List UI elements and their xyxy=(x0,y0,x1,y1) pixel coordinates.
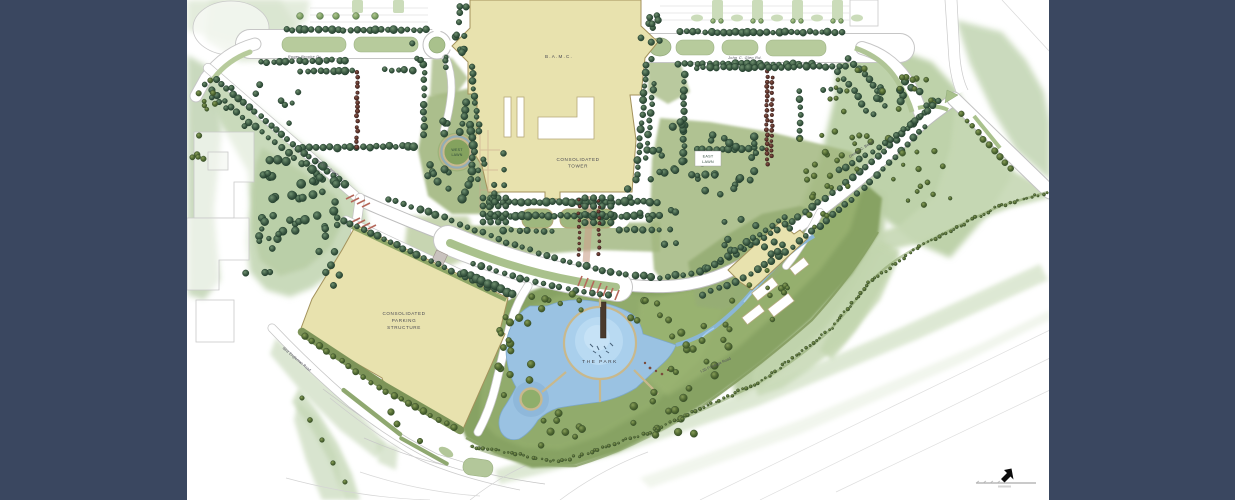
svg-text:THE PARK: THE PARK xyxy=(582,359,618,365)
svg-text:WEST: WEST xyxy=(451,148,463,152)
svg-text:CONSOLIDATED: CONSOLIDATED xyxy=(382,311,425,316)
svg-text:STRUCTURE: STRUCTURE xyxy=(387,325,421,330)
svg-text:LAWN: LAWN xyxy=(702,160,714,164)
svg-text:John C. Glen Rd.: John C. Glen Rd. xyxy=(727,56,762,60)
svg-text:LAWN: LAWN xyxy=(451,153,462,157)
svg-text:PARKING: PARKING xyxy=(392,318,417,323)
svg-text:B.A.M.C.: B.A.M.C. xyxy=(545,54,573,59)
svg-text:TOWER: TOWER xyxy=(568,164,588,169)
svg-text:EAST: EAST xyxy=(703,155,714,159)
svg-text:Roger Brooke Dr.: Roger Brooke Dr. xyxy=(288,55,322,59)
svg-text:CONSOLIDATED: CONSOLIDATED xyxy=(556,157,599,162)
